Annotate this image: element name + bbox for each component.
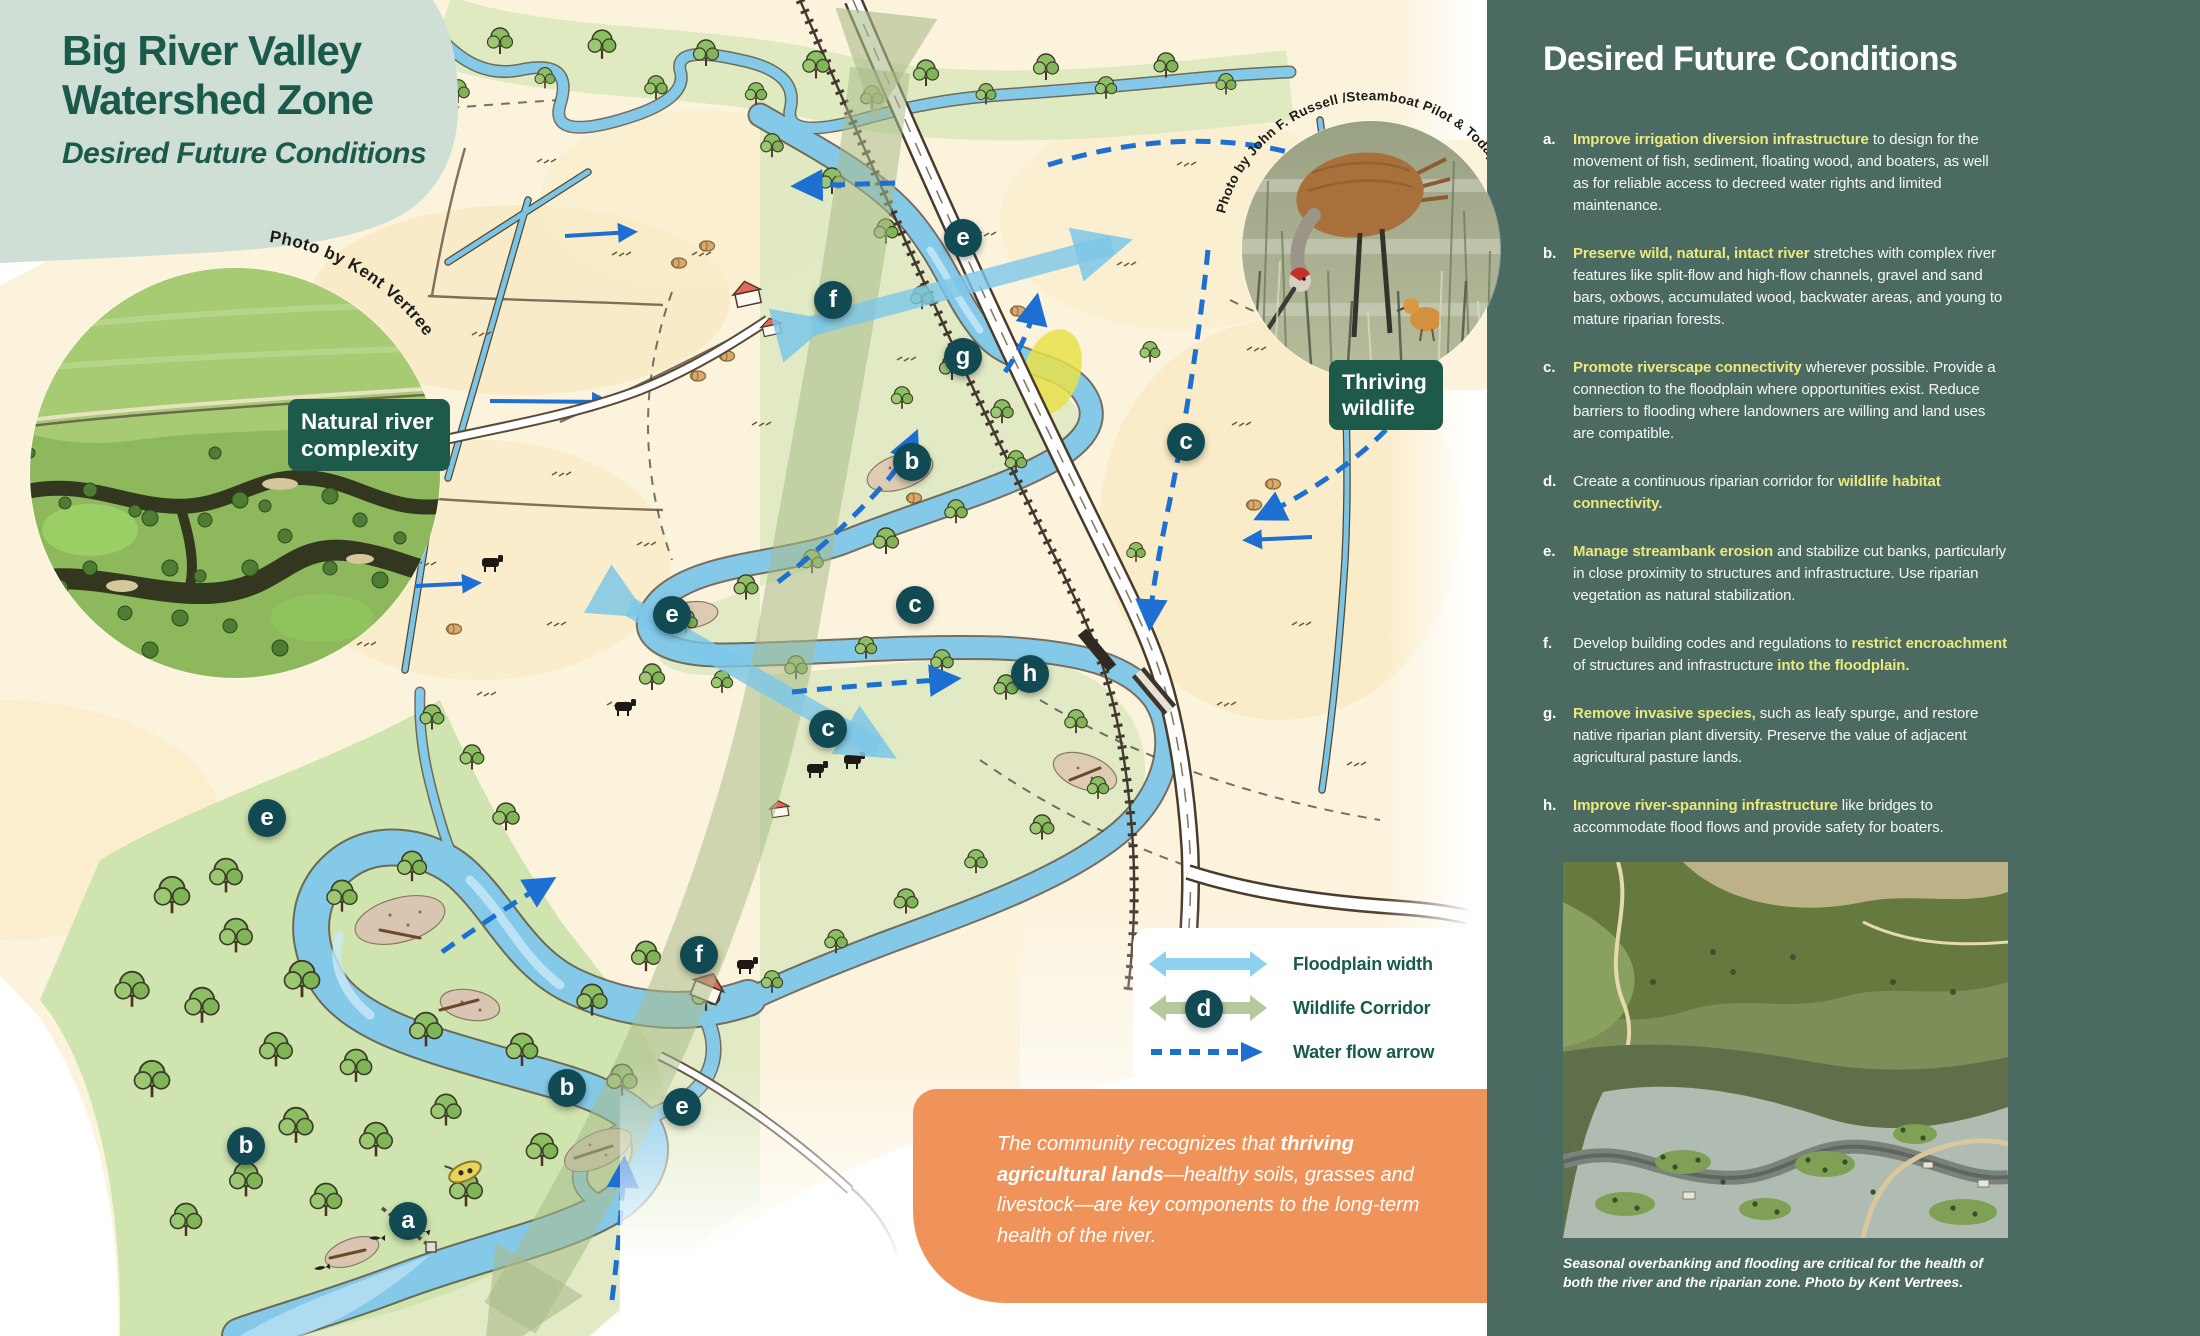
poster: Photo by Kent Vertrees Photo by John F. …: [0, 0, 2200, 1336]
dfc-item-f: f.Develop building codes and regulations…: [1543, 633, 2008, 677]
dfc-item-letter: e.: [1543, 541, 1573, 607]
sidebar-aerial-photo: [1563, 862, 2008, 1238]
dfc-item-letter: a.: [1543, 129, 1573, 217]
dfc-item-text: Preserve wild, natural, intact river str…: [1573, 243, 2008, 331]
map-legend: Floodplain width Wildlife Corridor: [1133, 928, 1483, 1086]
dfc-item-text: Improve irrigation diversion infrastruct…: [1573, 129, 2008, 217]
dfc-item-text: Remove invasive species, such as leafy s…: [1573, 703, 2008, 769]
legend-label-wildlife: Wildlife Corridor: [1293, 998, 1430, 1019]
photo-natural-river: [30, 268, 440, 678]
poster-subtitle: Desired Future Conditions: [62, 137, 426, 171]
poster-title: Big River Valley Watershed Zone Desired …: [62, 26, 426, 171]
label-thriving-wildlife: Thriving wildlife: [1329, 360, 1443, 430]
sidebar-title: Desired Future Conditions: [1543, 40, 2008, 79]
callout-text-before: The community recognizes that: [997, 1133, 1280, 1155]
title-line2: Watershed Zone: [62, 75, 426, 124]
water-flow-arrow-icon: [1149, 1038, 1271, 1066]
legend-label-floodplain: Floodplain width: [1293, 954, 1433, 975]
aerial-river-photo: [30, 268, 440, 678]
dfc-item-letter: c.: [1543, 357, 1573, 445]
dfc-item-text: Develop building codes and regulations t…: [1573, 633, 2008, 677]
dfc-item-text: Promote riverscape connectivity wherever…: [1573, 357, 2008, 445]
dfc-item-g: g.Remove invasive species, such as leafy…: [1543, 703, 2008, 769]
community-callout: The community recognizes that thriving a…: [913, 1089, 1487, 1303]
dfc-item-e: e.Manage streambank erosion and stabiliz…: [1543, 541, 2008, 607]
photo-thriving-wildlife: [1242, 121, 1500, 379]
legend-row-wildlife: Wildlife Corridor: [1149, 986, 1483, 1030]
dfc-item-text: Manage streambank erosion and stabilize …: [1573, 541, 2008, 607]
dfc-item-letter: h.: [1543, 795, 1573, 839]
legend-row-floodplain: Floodplain width: [1149, 942, 1483, 986]
wildlife-corridor-icon: [1149, 994, 1271, 1022]
map-area: Photo by Kent Vertrees Photo by John F. …: [0, 0, 1490, 1336]
dfc-item-text: Improve river-spanning infrastructure li…: [1573, 795, 2008, 839]
dfc-item-d: d.Create a continuous riparian corridor …: [1543, 471, 2008, 515]
title-line1: Big River Valley: [62, 26, 426, 75]
label-natural-river-complexity: Natural river complexity: [288, 399, 450, 471]
legend-row-flow: Water flow arrow: [1149, 1030, 1483, 1074]
legend-label-flow: Water flow arrow: [1293, 1042, 1434, 1063]
dfc-item-letter: f.: [1543, 633, 1573, 677]
dfc-list: a.Improve irrigation diversion infrastru…: [1543, 129, 2008, 839]
dfc-item-letter: g.: [1543, 703, 1573, 769]
dfc-item-h: h.Improve river-spanning infrastructure …: [1543, 795, 2008, 839]
dfc-item-b: b.Preserve wild, natural, intact river s…: [1543, 243, 2008, 331]
dfc-item-a: a.Improve irrigation diversion infrastru…: [1543, 129, 2008, 217]
dfc-item-letter: b.: [1543, 243, 1573, 331]
sidebar-photo-caption: Seasonal overbanking and flooding are cr…: [1563, 1254, 2013, 1292]
sidebar-desired-future-conditions: Desired Future Conditions a.Improve irri…: [1487, 0, 2200, 1336]
dfc-item-c: c.Promote riverscape connectivity wherev…: [1543, 357, 2008, 445]
floodplain-width-icon: [1149, 950, 1271, 978]
dfc-item-text: Create a continuous riparian corridor fo…: [1573, 471, 2008, 515]
dfc-item-letter: d.: [1543, 471, 1573, 515]
crane-photo: [1242, 121, 1500, 379]
